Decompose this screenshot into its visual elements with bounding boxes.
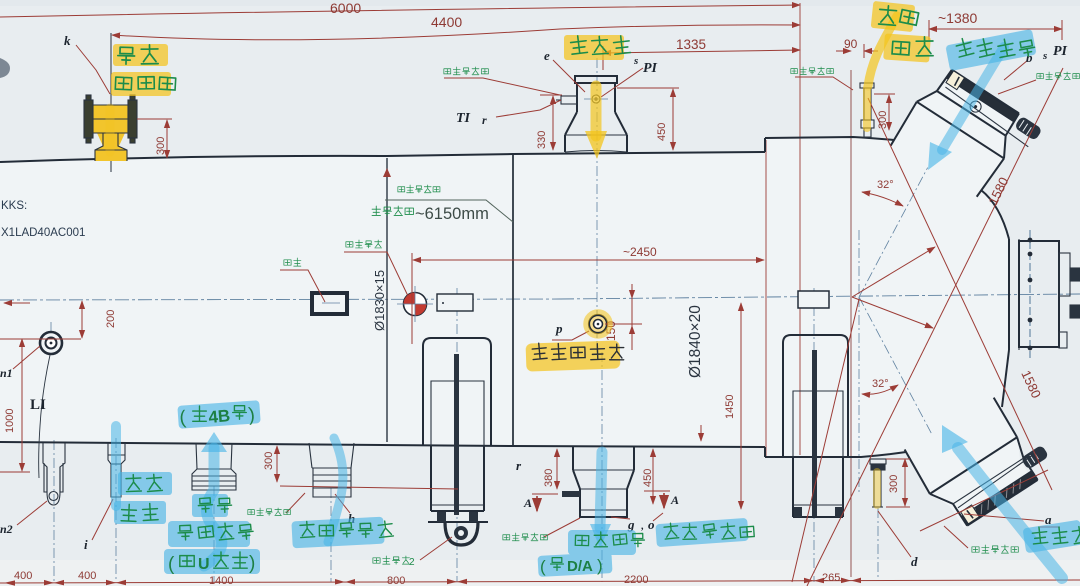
svg-text:1335: 1335 [676, 37, 706, 52]
svg-text:U: U [198, 556, 210, 573]
svg-text:800: 800 [387, 575, 405, 586]
svg-text:2: 2 [409, 557, 415, 568]
svg-text:90: 90 [844, 37, 858, 51]
svg-text:4B: 4B [208, 406, 231, 427]
svg-text:300: 300 [155, 137, 167, 155]
svg-text:s: s [1042, 50, 1047, 62]
svg-text:LI: LI [30, 397, 46, 413]
svg-text:o: o [648, 517, 655, 532]
svg-text:s: s [633, 55, 638, 67]
svg-text:k: k [64, 33, 71, 48]
svg-text:300: 300 [877, 111, 889, 129]
svg-text:32°: 32° [877, 179, 894, 191]
svg-text:): ) [249, 553, 255, 574]
svg-text:D/A: D/A [567, 558, 593, 575]
svg-text:PI: PI [643, 61, 658, 76]
svg-text:X1LAD40AC001: X1LAD40AC001 [1, 227, 85, 239]
svg-text:Ø1840×20: Ø1840×20 [687, 305, 704, 378]
svg-text:g: g [627, 517, 635, 532]
svg-text:1400: 1400 [209, 575, 233, 586]
svg-text:(: ( [540, 557, 546, 576]
svg-text:450: 450 [642, 469, 654, 487]
svg-text:450: 450 [656, 123, 668, 141]
svg-text:1450: 1450 [724, 395, 736, 419]
svg-text:1000: 1000 [4, 409, 16, 433]
svg-text:32°: 32° [872, 378, 889, 390]
svg-text:A: A [523, 496, 532, 510]
svg-text:~1380: ~1380 [938, 10, 978, 26]
svg-text:KKS:: KKS: [1, 200, 27, 212]
svg-text:): ) [597, 556, 603, 575]
svg-text:300: 300 [263, 452, 275, 470]
svg-text:n1: n1 [0, 366, 13, 380]
svg-text:300: 300 [888, 475, 900, 493]
svg-text:Ø1830×15: Ø1830×15 [372, 270, 387, 331]
svg-text:TI: TI [456, 111, 471, 126]
svg-text:380: 380 [543, 469, 555, 487]
svg-text:e: e [544, 48, 550, 63]
svg-text:PI: PI [1053, 44, 1068, 59]
svg-text:200: 200 [105, 310, 117, 328]
svg-text:A: A [670, 493, 679, 507]
svg-text:~2450: ~2450 [623, 245, 657, 259]
svg-text:265: 265 [822, 572, 840, 584]
svg-text:2200: 2200 [624, 574, 648, 586]
svg-text:d: d [911, 554, 918, 569]
svg-text:p: p [555, 321, 563, 336]
svg-text:4400: 4400 [431, 14, 462, 30]
svg-text:n2: n2 [0, 522, 13, 536]
svg-text:400: 400 [14, 570, 32, 582]
svg-text:(: ( [168, 554, 175, 575]
svg-text:~6150mm: ~6150mm [415, 205, 489, 223]
svg-text:6000: 6000 [330, 0, 361, 16]
svg-text:400: 400 [78, 570, 96, 582]
svg-text:r: r [482, 113, 487, 127]
svg-text:330: 330 [536, 131, 548, 149]
svg-text:i: i [84, 537, 88, 552]
